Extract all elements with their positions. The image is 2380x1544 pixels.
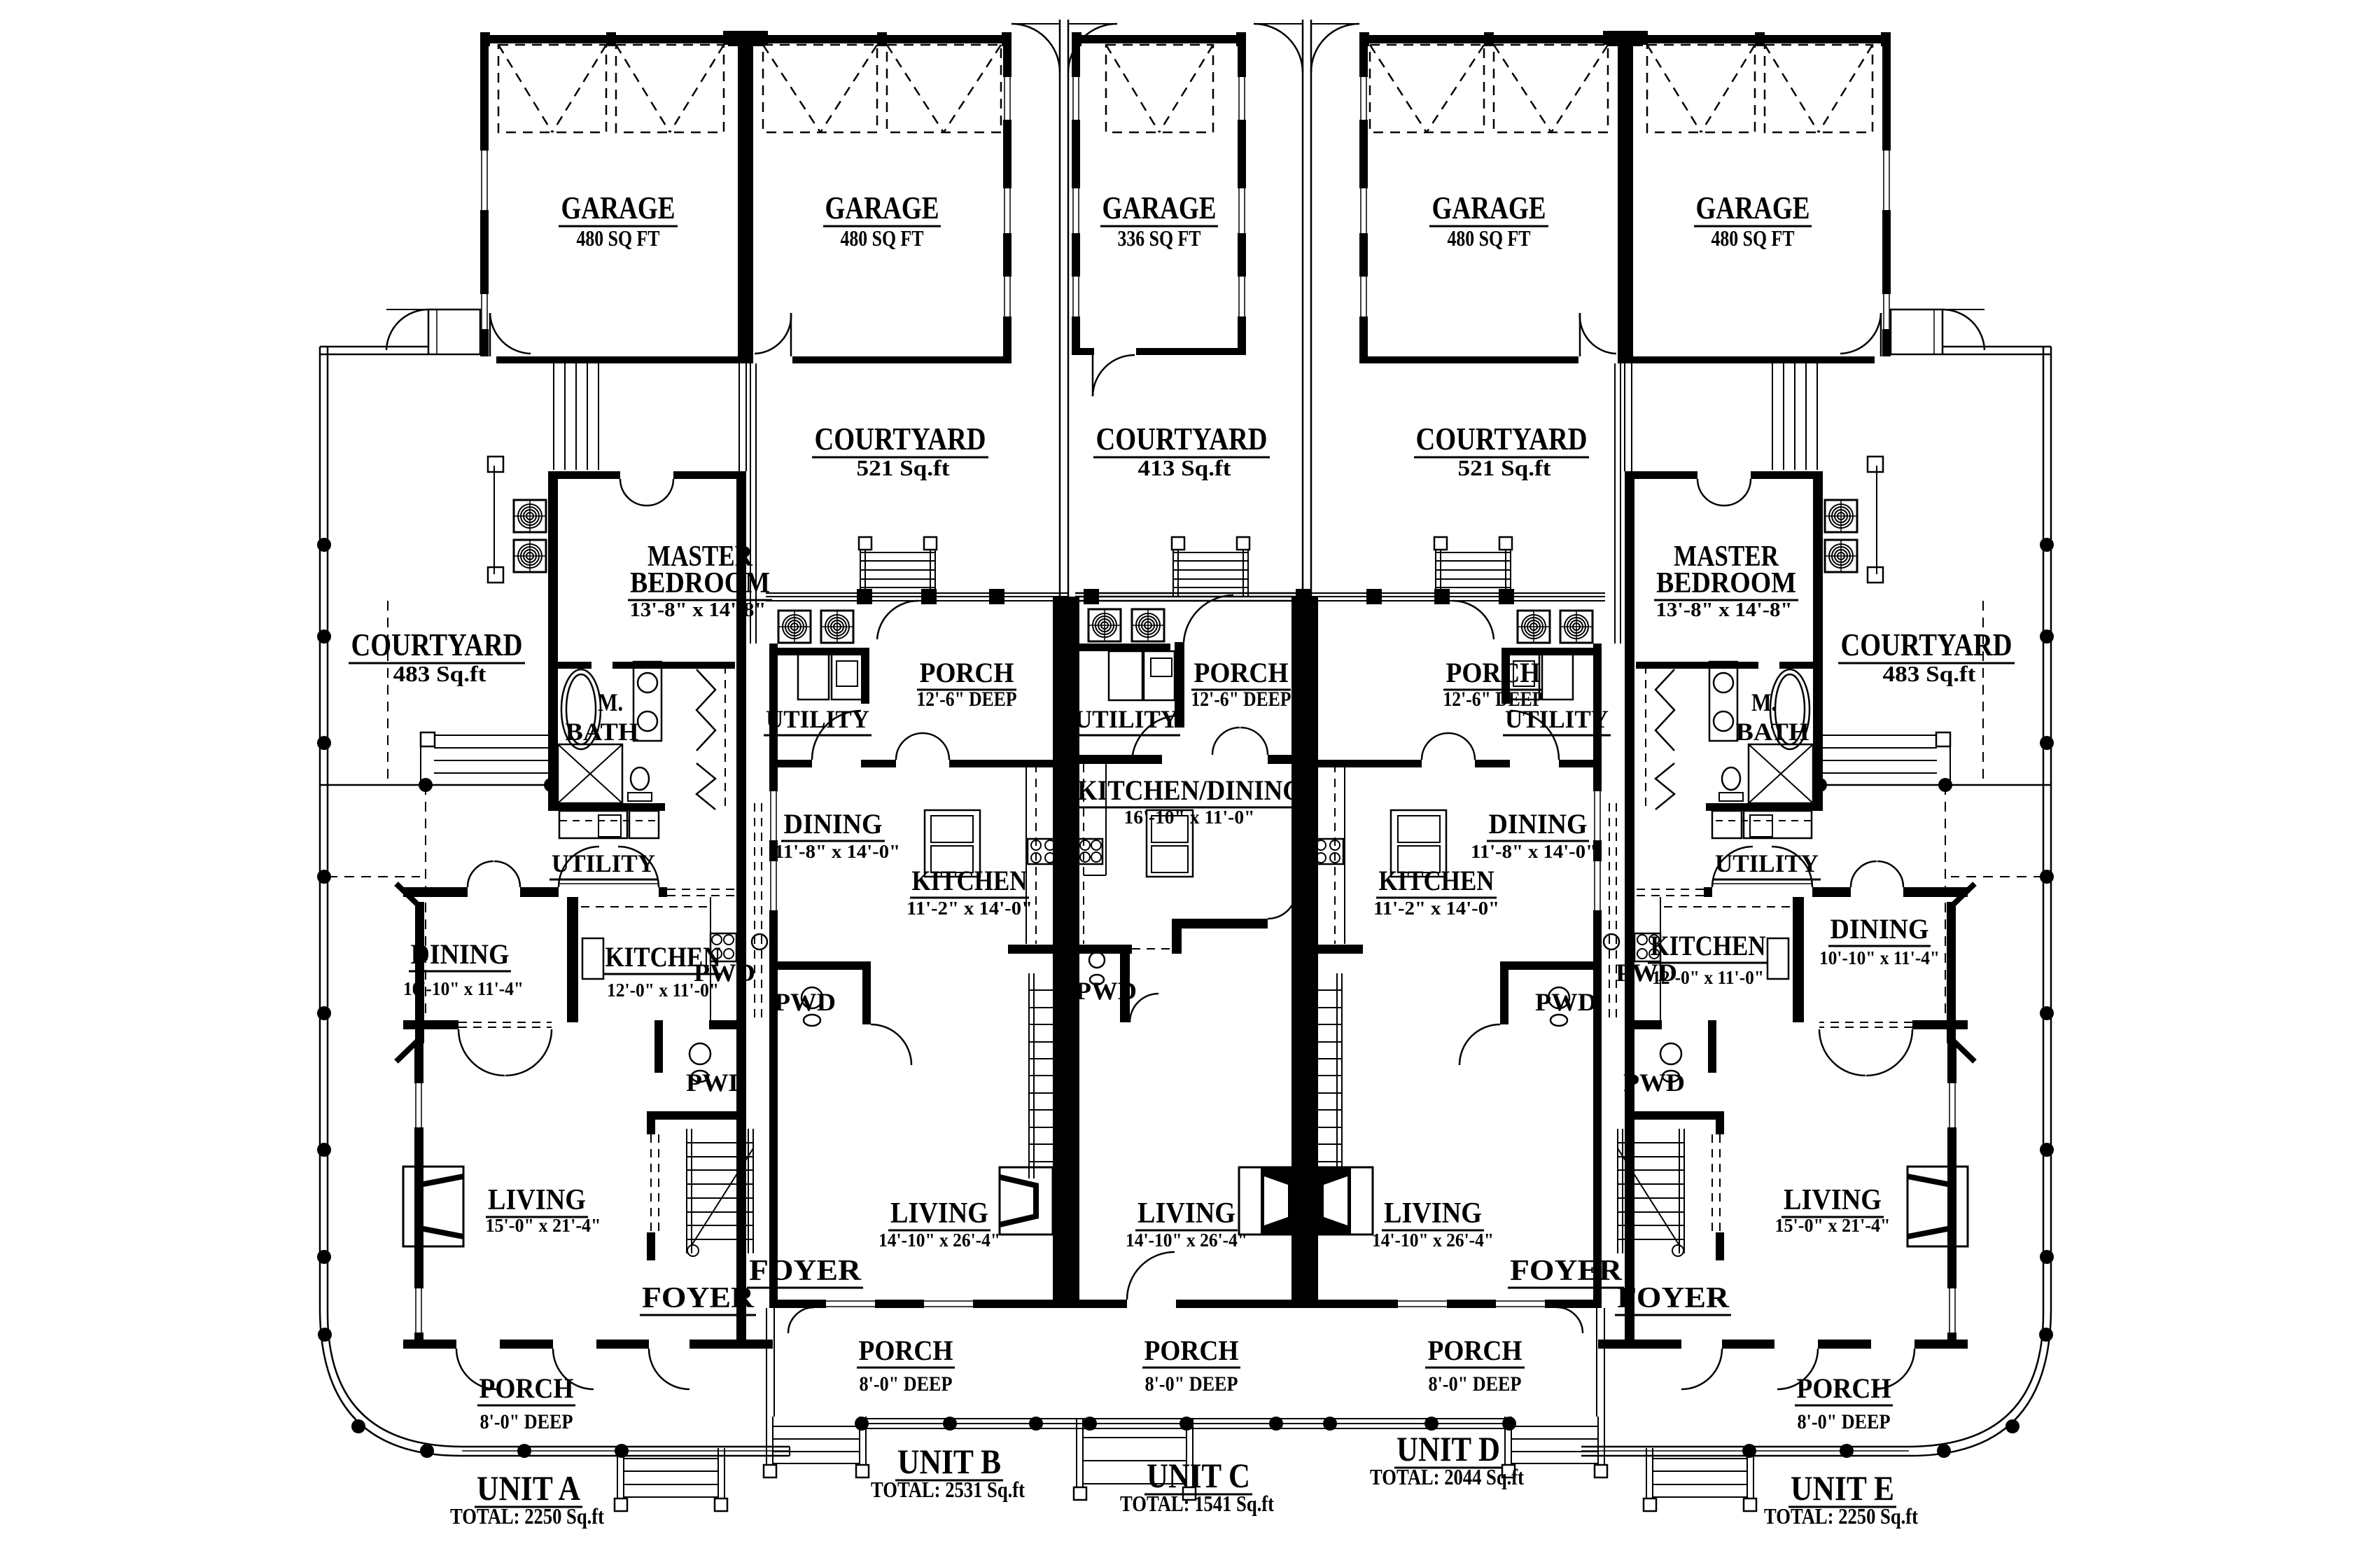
svg-text:DINING: DINING <box>411 938 510 970</box>
svg-text:8'-0" DEEP: 8'-0" DEEP <box>480 1410 573 1433</box>
svg-text:COURTYARD: COURTYARD <box>1416 421 1588 457</box>
svg-text:COURTYARD: COURTYARD <box>1096 421 1268 457</box>
svg-text:DINING: DINING <box>1830 913 1929 945</box>
svg-text:483 Sq.ft: 483 Sq.ft <box>1883 661 1976 686</box>
svg-text:PWD: PWD <box>1623 1069 1685 1097</box>
svg-text:PORCH: PORCH <box>920 657 1014 688</box>
svg-text:10'-10" x 11'-4": 10'-10" x 11'-4" <box>1819 947 1940 968</box>
svg-text:UTILITY: UTILITY <box>1505 705 1609 733</box>
svg-text:14'-10" x 26'-4": 14'-10" x 26'-4" <box>1372 1230 1494 1251</box>
svg-text:BEDROOM: BEDROOM <box>1656 567 1796 599</box>
svg-text:UNIT D: UNIT D <box>1396 1429 1500 1468</box>
svg-text:15'-0" x 21'-4": 15'-0" x 21'-4" <box>486 1215 601 1236</box>
svg-text:LIVING: LIVING <box>1384 1197 1482 1230</box>
svg-text:PORCH: PORCH <box>859 1335 953 1366</box>
svg-text:PWD: PWD <box>1075 977 1137 1005</box>
svg-text:M.: M. <box>598 688 623 716</box>
svg-text:12'-6" DEEP: 12'-6" DEEP <box>1191 688 1291 711</box>
svg-text:UTILITY: UTILITY <box>552 849 655 877</box>
svg-text:PORCH: PORCH <box>1144 1335 1239 1366</box>
svg-text:BATH: BATH <box>1736 718 1809 746</box>
svg-text:GARAGE: GARAGE <box>561 190 675 225</box>
svg-text:TOTAL: 1541 Sq.ft: TOTAL: 1541 Sq.ft <box>1120 1491 1274 1516</box>
svg-text:LIVING: LIVING <box>1137 1197 1235 1230</box>
svg-text:TOTAL: 2531 Sq.ft: TOTAL: 2531 Sq.ft <box>871 1477 1025 1502</box>
svg-text:FOYER: FOYER <box>749 1255 862 1287</box>
svg-text:KITCHEN: KITCHEN <box>912 865 1028 896</box>
svg-text:11'-2" x 14'-0": 11'-2" x 14'-0" <box>906 898 1032 919</box>
svg-text:483 Sq.ft: 483 Sq.ft <box>393 661 486 686</box>
svg-text:PORCH: PORCH <box>1428 1335 1522 1366</box>
svg-text:11'-8" x 14'-0": 11'-8" x 14'-0" <box>1471 841 1597 862</box>
svg-text:PWD: PWD <box>694 959 755 987</box>
svg-text:8'-0" DEEP: 8'-0" DEEP <box>860 1372 953 1396</box>
svg-text:521 Sq.ft: 521 Sq.ft <box>1458 455 1551 480</box>
svg-text:8'-0" DEEP: 8'-0" DEEP <box>1798 1410 1891 1433</box>
svg-text:10'-10" x 11'-4": 10'-10" x 11'-4" <box>403 978 524 999</box>
svg-text:UNIT A: UNIT A <box>477 1468 580 1508</box>
svg-text:UNIT B: UNIT B <box>897 1442 1001 1481</box>
svg-text:16'-10" x 11'-0": 16'-10" x 11'-0" <box>1124 807 1255 828</box>
svg-text:PWD: PWD <box>1535 988 1597 1016</box>
svg-text:PORCH: PORCH <box>1194 657 1289 688</box>
svg-text:M.: M. <box>1751 688 1777 716</box>
svg-text:UTILITY: UTILITY <box>766 705 869 733</box>
svg-text:13'-8" x 14'-8": 13'-8" x 14'-8" <box>630 599 766 621</box>
svg-text:UTILITY: UTILITY <box>1715 849 1819 877</box>
svg-text:TOTAL: 2044 Sq.ft: TOTAL: 2044 Sq.ft <box>1370 1464 1524 1489</box>
svg-text:KITCHEN/DINING: KITCHEN/DINING <box>1077 774 1303 806</box>
svg-text:PORCH: PORCH <box>479 1372 574 1404</box>
svg-text:PWD: PWD <box>686 1069 748 1097</box>
svg-text:COURTYARD: COURTYARD <box>815 421 986 457</box>
svg-text:LIVING: LIVING <box>488 1184 586 1216</box>
svg-text:PORCH: PORCH <box>1446 657 1541 688</box>
svg-text:COURTYARD: COURTYARD <box>1841 627 2012 662</box>
svg-text:GARAGE: GARAGE <box>1696 190 1810 225</box>
svg-text:KITCHEN: KITCHEN <box>1379 865 1494 896</box>
svg-text:TOTAL: 2250 Sq.ft: TOTAL: 2250 Sq.ft <box>450 1503 604 1529</box>
svg-text:GARAGE: GARAGE <box>1432 190 1546 225</box>
svg-text:8'-0" DEEP: 8'-0" DEEP <box>1429 1372 1522 1396</box>
svg-text:15'-0" x 21'-4": 15'-0" x 21'-4" <box>1775 1215 1891 1236</box>
svg-text:UTILITY: UTILITY <box>1074 705 1178 733</box>
svg-text:413 Sq.ft: 413 Sq.ft <box>1138 455 1231 480</box>
svg-text:12'-6" DEEP: 12'-6" DEEP <box>917 688 1017 711</box>
svg-text:480 SQ FT: 480 SQ FT <box>577 225 660 251</box>
svg-text:GARAGE: GARAGE <box>1102 190 1217 225</box>
svg-text:480 SQ FT: 480 SQ FT <box>841 225 924 251</box>
svg-text:BATH: BATH <box>566 718 639 746</box>
svg-text:FOYER: FOYER <box>642 1282 755 1314</box>
svg-text:336 SQ FT: 336 SQ FT <box>1118 225 1201 251</box>
svg-text:LIVING: LIVING <box>890 1197 988 1230</box>
svg-text:PWD: PWD <box>1616 959 1677 987</box>
svg-text:TOTAL: 2250 Sq.ft: TOTAL: 2250 Sq.ft <box>1764 1503 1918 1529</box>
svg-text:UNIT C: UNIT C <box>1147 1456 1250 1495</box>
svg-text:FOYER: FOYER <box>1617 1282 1730 1314</box>
svg-text:UNIT E: UNIT E <box>1791 1468 1894 1508</box>
svg-text:480 SQ FT: 480 SQ FT <box>1448 225 1531 251</box>
svg-text:521 Sq.ft: 521 Sq.ft <box>857 455 950 480</box>
svg-text:DINING: DINING <box>784 808 883 840</box>
svg-text:KITCHEN: KITCHEN <box>1651 930 1766 961</box>
svg-text:FOYER: FOYER <box>1510 1255 1623 1287</box>
svg-text:PWD: PWD <box>774 988 836 1016</box>
svg-text:LIVING: LIVING <box>1784 1184 1882 1216</box>
svg-text:DINING: DINING <box>1489 808 1588 840</box>
svg-text:8'-0" DEEP: 8'-0" DEEP <box>1145 1372 1238 1396</box>
svg-text:14'-10" x 26'-4": 14'-10" x 26'-4" <box>1126 1230 1247 1251</box>
svg-text:BEDROOM: BEDROOM <box>630 567 770 599</box>
svg-text:14'-10" x 26'-4": 14'-10" x 26'-4" <box>878 1230 1000 1251</box>
svg-text:PORCH: PORCH <box>1797 1372 1891 1404</box>
svg-text:GARAGE: GARAGE <box>825 190 939 225</box>
svg-text:11'-2" x 14'-0": 11'-2" x 14'-0" <box>1373 898 1499 919</box>
svg-text:480 SQ FT: 480 SQ FT <box>1711 225 1795 251</box>
svg-text:13'-8" x 14'-8": 13'-8" x 14'-8" <box>1656 599 1793 621</box>
svg-text:COURTYARD: COURTYARD <box>351 627 523 662</box>
svg-text:11'-8" x 14'-0": 11'-8" x 14'-0" <box>774 841 900 862</box>
